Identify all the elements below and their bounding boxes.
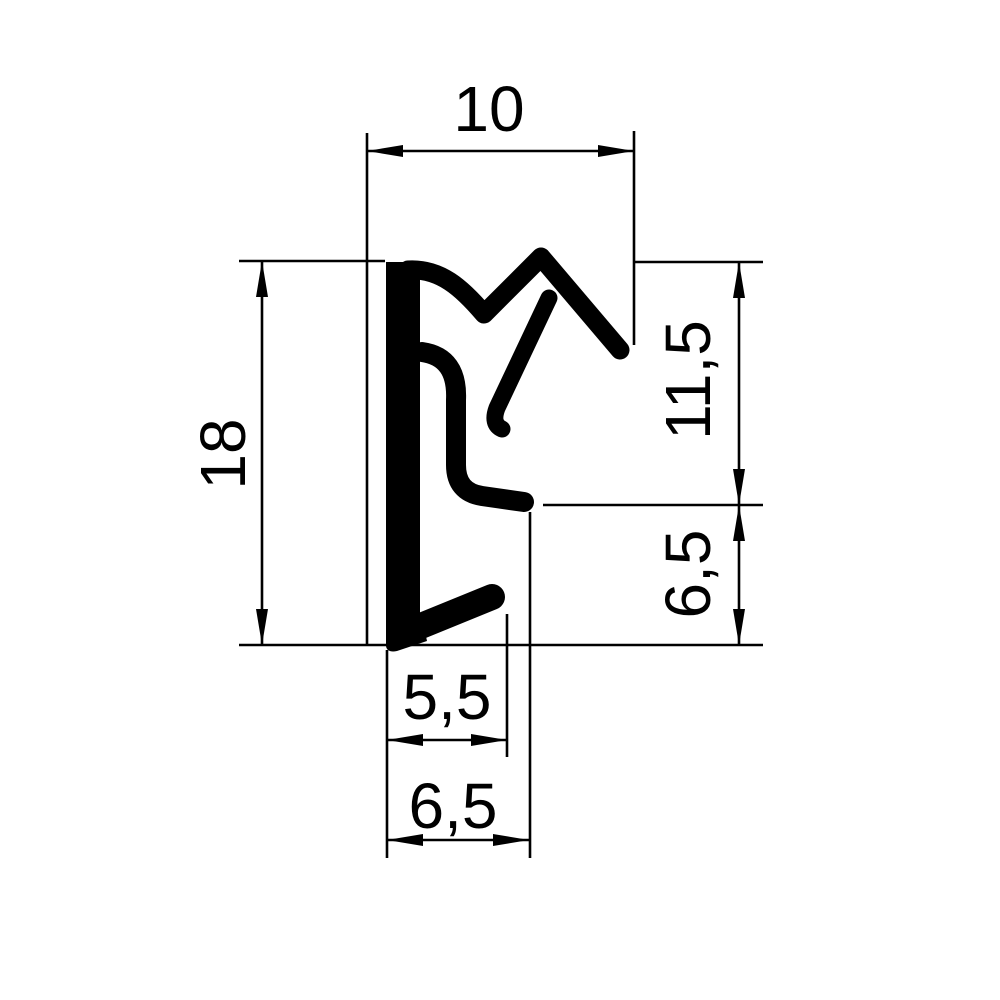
profile-top-fin [408,257,620,350]
drawing-page: 10 18 11,5 6,5 5,5 6,5 [0,0,1000,1000]
profile-bottom-lip [411,597,492,630]
profile-inner-diagonal-fin [495,298,549,429]
dimline-top-width-arrow-left [367,145,403,157]
profile-back-bar [386,262,420,620]
dim-label-right-lower-height: 6,5 [652,530,724,619]
dimline-bottom-inner-arrow-left [387,734,423,746]
dimline-right-lower-arrow-down [733,609,745,645]
dimline-left-height-arrow-up [256,261,268,297]
dimline-left-height-arrow-down [256,609,268,645]
dimline-right-upper-arrow-up [733,262,745,298]
dimline-top-width-arrow-right [598,145,634,157]
dim-label-right-upper-height: 11,5 [652,320,724,440]
seal-profile-shape [386,257,620,651]
dim-label-bottom-overall-width: 6,5 [409,770,498,842]
dim-label-left-height: 18 [187,418,259,489]
dim-label-top-width: 10 [453,73,524,145]
dimline-bottom-outer-arrow-right [493,834,529,846]
dimline-right-upper-arrow-down [733,469,745,505]
technical-drawing-canvas: 10 18 11,5 6,5 5,5 6,5 [0,0,1000,1000]
dim-label-bottom-inner-width: 5,5 [403,661,492,733]
dimline-bottom-inner-arrow-right [471,734,507,746]
dimline-right-lower-arrow-up [733,505,745,541]
